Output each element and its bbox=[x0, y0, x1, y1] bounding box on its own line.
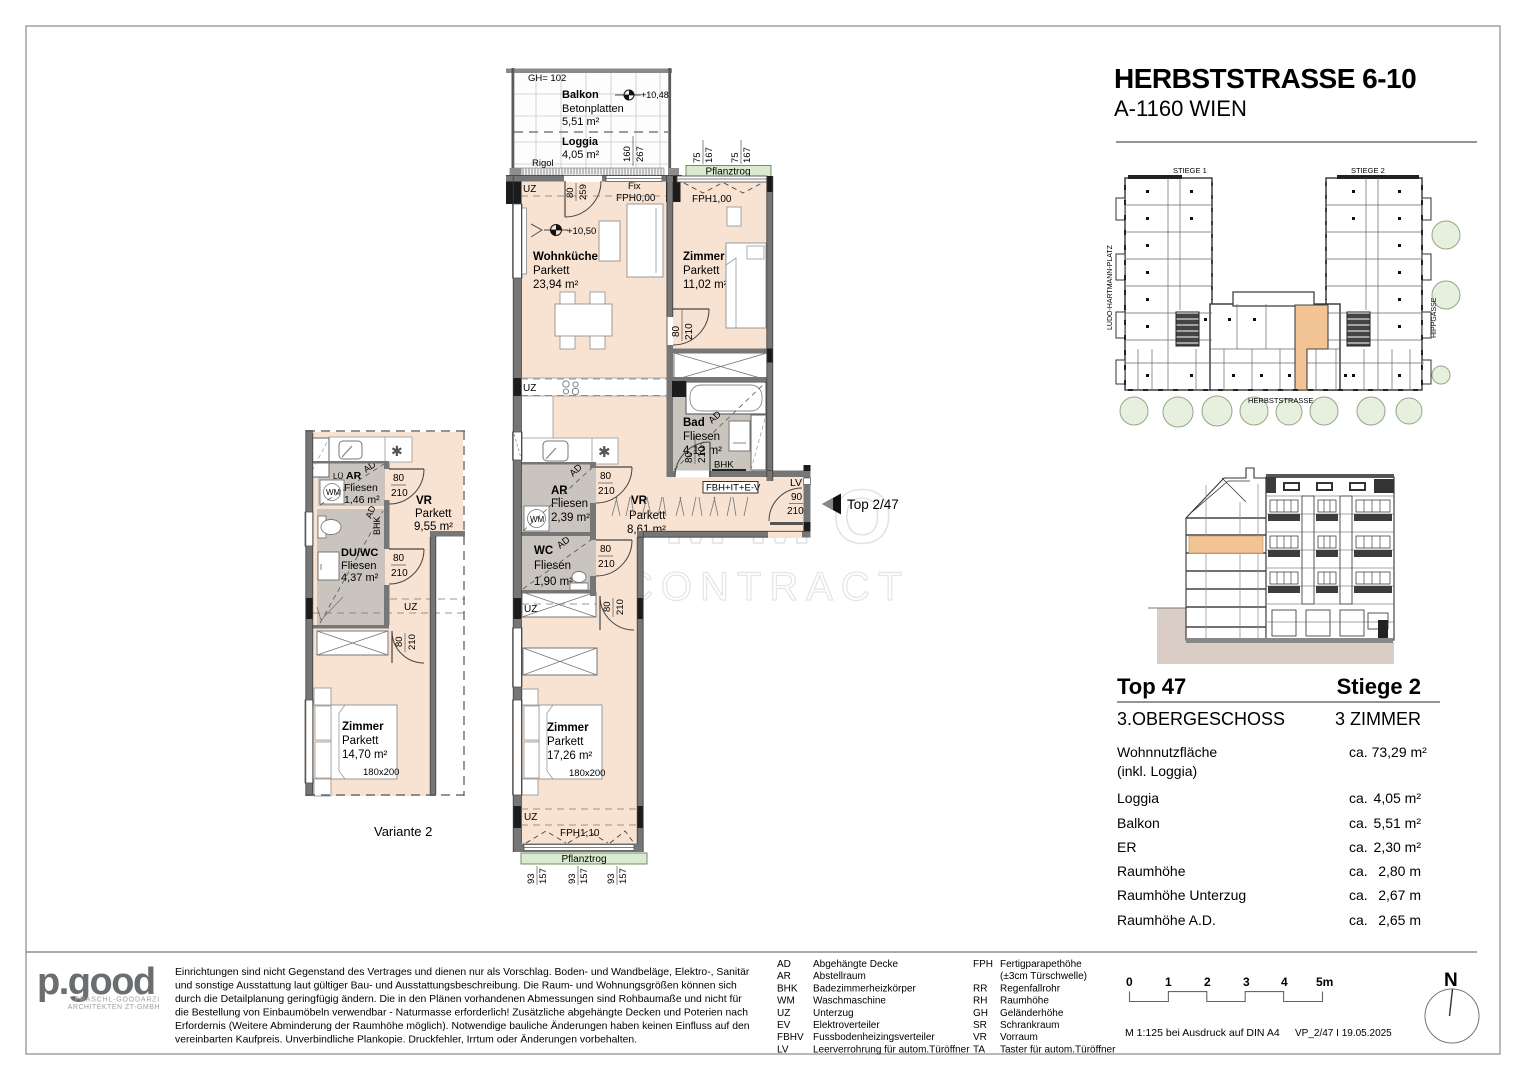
svg-text:23,94 m²: 23,94 m² bbox=[533, 279, 579, 291]
svg-text:Top 2/47: Top 2/47 bbox=[847, 497, 899, 512]
svg-text:Unterzug: Unterzug bbox=[813, 1008, 854, 1019]
svg-text:75: 75 bbox=[730, 152, 741, 163]
svg-text:VR: VR bbox=[416, 495, 433, 507]
svg-text:4,05 m²: 4,05 m² bbox=[562, 149, 600, 161]
svg-text:Abgehängte Decke: Abgehängte Decke bbox=[813, 959, 899, 970]
svg-text:AD: AD bbox=[777, 959, 791, 970]
svg-text:14,70 m²: 14,70 m² bbox=[342, 749, 388, 761]
svg-text:AR: AR bbox=[777, 971, 791, 982]
svg-text:4: 4 bbox=[1281, 975, 1288, 989]
svg-text:4,37 m²: 4,37 m² bbox=[341, 572, 379, 584]
svg-text:vereinbarten Kaufpreis. Unverb: vereinbarten Kaufpreis. Unverbindliche P… bbox=[175, 1034, 637, 1046]
svg-text:2,65 m: 2,65 m bbox=[1378, 912, 1421, 928]
svg-text:160: 160 bbox=[622, 146, 633, 162]
svg-text:80: 80 bbox=[600, 544, 612, 555]
svg-text:157: 157 bbox=[618, 868, 629, 884]
svg-text:Schrankraum: Schrankraum bbox=[1000, 1020, 1059, 1031]
svg-text:+10,50: +10,50 bbox=[567, 226, 596, 237]
svg-text:210: 210 bbox=[407, 634, 418, 650]
svg-text:FPH1,10: FPH1,10 bbox=[560, 828, 600, 839]
svg-text:180x200: 180x200 bbox=[363, 767, 399, 778]
svg-text:M 1:125 bei Ausdruck auf DIN A: M 1:125 bei Ausdruck auf DIN A4 bbox=[1125, 1027, 1280, 1039]
svg-text:4,05 m²: 4,05 m² bbox=[1374, 790, 1422, 806]
svg-text:ER: ER bbox=[1117, 839, 1136, 855]
svg-text:FPH0,00: FPH0,00 bbox=[616, 193, 656, 204]
svg-text:167: 167 bbox=[742, 147, 753, 163]
svg-text:Parkett: Parkett bbox=[415, 508, 452, 520]
svg-text:Vorraum: Vorraum bbox=[1000, 1032, 1038, 1043]
svg-text:WC: WC bbox=[534, 545, 553, 557]
svg-text:80: 80 bbox=[671, 325, 682, 337]
svg-text:0: 0 bbox=[1126, 975, 1133, 989]
svg-text:Taster für autom.Türöffner: Taster für autom.Türöffner bbox=[1000, 1044, 1116, 1055]
svg-text:Betonplatten: Betonplatten bbox=[562, 103, 624, 115]
svg-text:80: 80 bbox=[600, 471, 612, 482]
svg-text:93: 93 bbox=[526, 873, 537, 884]
svg-text:BHK: BHK bbox=[372, 516, 382, 535]
svg-text:LUDO-HARTMANN-PLATZ: LUDO-HARTMANN-PLATZ bbox=[1107, 244, 1114, 330]
svg-text:BHK: BHK bbox=[777, 983, 798, 994]
svg-text:Stiege 2: Stiege 2 bbox=[1337, 674, 1421, 699]
svg-text:Zimmer: Zimmer bbox=[683, 251, 725, 263]
svg-text:93: 93 bbox=[606, 873, 617, 884]
svg-text:TA: TA bbox=[973, 1044, 985, 1055]
svg-text:ARCHITEKTEN ZT-GMBH: ARCHITEKTEN ZT-GMBH bbox=[68, 1004, 160, 1011]
svg-text:210: 210 bbox=[615, 599, 626, 615]
svg-text:Waschmaschine: Waschmaschine bbox=[813, 996, 886, 1007]
svg-text:180x200: 180x200 bbox=[569, 768, 605, 779]
svg-text:210: 210 bbox=[598, 486, 615, 497]
svg-text:Variante 2: Variante 2 bbox=[374, 824, 432, 839]
svg-text:80: 80 bbox=[602, 601, 613, 612]
svg-text:Geländerhöhe: Geländerhöhe bbox=[1000, 1008, 1064, 1019]
svg-text:Parkett: Parkett bbox=[629, 510, 666, 522]
svg-text:80: 80 bbox=[393, 553, 405, 564]
svg-text:Fliesen: Fliesen bbox=[683, 431, 720, 443]
svg-text:1,46 m²: 1,46 m² bbox=[344, 494, 380, 506]
svg-text:90: 90 bbox=[791, 492, 803, 503]
svg-text:5m: 5m bbox=[1316, 975, 1333, 989]
svg-text:Parkett: Parkett bbox=[342, 735, 379, 747]
svg-text:STIEGE 2: STIEGE 2 bbox=[1351, 166, 1385, 175]
svg-text:Abstellraum: Abstellraum bbox=[813, 971, 866, 982]
svg-text:210: 210 bbox=[787, 506, 804, 517]
svg-text:5,51 m²: 5,51 m² bbox=[562, 116, 600, 128]
svg-text:Raumhöhe Unterzug: Raumhöhe Unterzug bbox=[1117, 887, 1246, 903]
svg-text:BHK: BHK bbox=[714, 460, 734, 471]
svg-text:Elektroverteiler: Elektroverteiler bbox=[813, 1020, 880, 1031]
svg-text:Wohnnutzfläche: Wohnnutzfläche bbox=[1117, 744, 1217, 760]
svg-text:EV: EV bbox=[777, 1020, 791, 1031]
svg-text:FBHV: FBHV bbox=[777, 1032, 804, 1043]
svg-text:5,51 m²: 5,51 m² bbox=[1374, 815, 1422, 831]
svg-text:3 ZIMMER: 3 ZIMMER bbox=[1335, 709, 1421, 729]
svg-text:UZ: UZ bbox=[777, 1008, 790, 1019]
svg-text:Erfordernis (Weitere Abminderu: Erfordernis (Weitere Abminderung der Rau… bbox=[175, 1020, 750, 1032]
svg-text:LV: LV bbox=[790, 477, 802, 489]
svg-text:210: 210 bbox=[684, 323, 695, 340]
svg-text:GH= 102: GH= 102 bbox=[528, 73, 566, 84]
svg-text:Rigol: Rigol bbox=[532, 158, 554, 169]
svg-text:17,26 m²: 17,26 m² bbox=[547, 750, 593, 762]
svg-text:Fussbodenheizingsverteiler: Fussbodenheizingsverteiler bbox=[813, 1032, 935, 1043]
svg-text:und sonstige Ausstattung laut: und sonstige Ausstattung laut gültiger B… bbox=[175, 981, 737, 992]
svg-text:CONTRACT: CONTRACT bbox=[624, 565, 910, 609]
svg-text:Badezimmerheizkörper: Badezimmerheizkörper bbox=[813, 983, 916, 994]
svg-text:Zimmer: Zimmer bbox=[342, 721, 384, 733]
svg-text:93: 93 bbox=[567, 873, 578, 884]
svg-text:✱: ✱ bbox=[391, 443, 403, 459]
svg-text:FPH: FPH bbox=[973, 959, 993, 970]
svg-text:(inkl. Loggia): (inkl. Loggia) bbox=[1117, 763, 1197, 779]
svg-text:WM: WM bbox=[326, 488, 341, 497]
svg-text:SR: SR bbox=[973, 1020, 987, 1031]
svg-text:1,90 m²: 1,90 m² bbox=[534, 576, 573, 588]
svg-text:VR: VR bbox=[973, 1032, 987, 1043]
svg-text:3: 3 bbox=[1243, 975, 1250, 989]
svg-text:STIEGE 1: STIEGE 1 bbox=[1173, 166, 1207, 175]
svg-text:Fix: Fix bbox=[628, 181, 641, 192]
svg-text:3.OBERGESCHOSS: 3.OBERGESCHOSS bbox=[1117, 709, 1285, 729]
svg-text:AR: AR bbox=[551, 485, 568, 497]
svg-text:PRASCHL-GOODARZI: PRASCHL-GOODARZI bbox=[74, 997, 160, 1004]
svg-text:2,80 m: 2,80 m bbox=[1378, 863, 1421, 879]
svg-text:ca. 73,29 m²: ca. 73,29 m² bbox=[1349, 744, 1427, 760]
svg-text:80: 80 bbox=[684, 451, 695, 463]
svg-text:+10,48: +10,48 bbox=[641, 90, 669, 100]
svg-text:ca.: ca. bbox=[1349, 790, 1368, 806]
svg-text:2,67 m: 2,67 m bbox=[1378, 887, 1421, 903]
svg-text:ca.: ca. bbox=[1349, 887, 1368, 903]
svg-text:Loggia: Loggia bbox=[1117, 790, 1159, 806]
svg-text:RH: RH bbox=[973, 996, 987, 1007]
svg-text:durch die Detailplanung gering: durch die Detailplanung geringfügig ände… bbox=[175, 994, 742, 1005]
svg-text:Top 47: Top 47 bbox=[1117, 674, 1186, 699]
svg-text:210: 210 bbox=[598, 559, 615, 570]
svg-text:HERBSTSTRASSE 6-10: HERBSTSTRASSE 6-10 bbox=[1114, 63, 1416, 94]
svg-text:2,30 m²: 2,30 m² bbox=[1374, 839, 1422, 855]
svg-text:HERBSTSTRASSE: HERBSTSTRASSE bbox=[1248, 396, 1313, 405]
svg-text:Fliesen: Fliesen bbox=[341, 560, 376, 572]
svg-text:Raumhöhe: Raumhöhe bbox=[1000, 996, 1049, 1007]
svg-text:Fliesen: Fliesen bbox=[344, 482, 378, 494]
svg-text:Zimmer: Zimmer bbox=[547, 722, 589, 734]
svg-text:WM: WM bbox=[777, 996, 795, 1007]
svg-text:ca.: ca. bbox=[1349, 912, 1368, 928]
svg-text:75: 75 bbox=[692, 152, 703, 163]
svg-text:210: 210 bbox=[391, 488, 408, 499]
svg-text:Raumhöhe: Raumhöhe bbox=[1117, 863, 1186, 879]
svg-text:FPH1,00: FPH1,00 bbox=[692, 194, 732, 205]
svg-text:ca.: ca. bbox=[1349, 863, 1368, 879]
svg-text:die Bestellung von Einbaumöbel: die Bestellung von Einbaumöbeln verwendb… bbox=[175, 1008, 748, 1019]
svg-text:✱: ✱ bbox=[598, 444, 611, 461]
svg-text:GH: GH bbox=[973, 1008, 988, 1019]
svg-text:80: 80 bbox=[393, 473, 405, 484]
svg-text:LV: LV bbox=[777, 1044, 789, 1055]
svg-text:267: 267 bbox=[635, 146, 646, 162]
svg-text:Fertigparapethöhe: Fertigparapethöhe bbox=[1000, 959, 1082, 970]
svg-text:157: 157 bbox=[579, 868, 590, 884]
svg-text:DU/WC: DU/WC bbox=[341, 547, 378, 559]
svg-text:HIPPGASSE: HIPPGASSE bbox=[1431, 297, 1438, 338]
svg-text:UZ: UZ bbox=[523, 383, 536, 394]
svg-text:80: 80 bbox=[565, 187, 576, 198]
svg-text:167: 167 bbox=[704, 147, 715, 163]
svg-text:Leerverrohrung für autom.Türöf: Leerverrohrung für autom.Türöffner bbox=[813, 1044, 970, 1055]
svg-text:ca.: ca. bbox=[1349, 815, 1368, 831]
svg-text:80: 80 bbox=[394, 636, 405, 647]
svg-text:ca.: ca. bbox=[1349, 839, 1368, 855]
svg-text:Pflanztrog: Pflanztrog bbox=[561, 854, 606, 865]
svg-text:Balkon: Balkon bbox=[1117, 815, 1160, 831]
svg-text:Bad: Bad bbox=[683, 417, 705, 429]
svg-text:Loggia: Loggia bbox=[562, 136, 599, 148]
svg-text:Wohnküche: Wohnküche bbox=[533, 251, 598, 263]
svg-text:FBH+IT+E-V: FBH+IT+E-V bbox=[706, 483, 761, 494]
svg-text:LÜ: LÜ bbox=[333, 472, 343, 481]
svg-text:Balkon: Balkon bbox=[562, 89, 599, 101]
svg-text:Regenfallrohr: Regenfallrohr bbox=[1000, 983, 1061, 994]
svg-text:1: 1 bbox=[1165, 975, 1172, 989]
svg-text:210: 210 bbox=[391, 568, 408, 579]
svg-text:A-1160 WIEN: A-1160 WIEN bbox=[1114, 96, 1247, 121]
svg-text:UZ: UZ bbox=[404, 602, 417, 613]
svg-text:Einrichtungen sind nicht Gegen: Einrichtungen sind nicht Gegenstand des … bbox=[175, 967, 750, 978]
svg-text:259: 259 bbox=[578, 184, 589, 200]
svg-text:UZ: UZ bbox=[524, 812, 537, 823]
svg-text:UZ: UZ bbox=[524, 604, 537, 615]
svg-text:2,39 m²: 2,39 m² bbox=[551, 512, 590, 524]
svg-text:157: 157 bbox=[538, 868, 549, 884]
svg-text:Parkett: Parkett bbox=[533, 265, 570, 277]
svg-text:2: 2 bbox=[1204, 975, 1211, 989]
svg-text:RR: RR bbox=[973, 983, 987, 994]
svg-text:Parkett: Parkett bbox=[683, 265, 720, 277]
svg-text:Raumhöhe A.D.: Raumhöhe A.D. bbox=[1117, 912, 1216, 928]
svg-text:UZ: UZ bbox=[523, 184, 536, 195]
svg-text:VP_2/47 I 19.05.2025: VP_2/47 I 19.05.2025 bbox=[1295, 1028, 1392, 1039]
svg-text:Fliesen: Fliesen bbox=[534, 560, 571, 572]
svg-text:N: N bbox=[1444, 970, 1458, 991]
svg-text:(±3cm Türschwelle): (±3cm Türschwelle) bbox=[1000, 971, 1087, 982]
svg-text:11,02 m²: 11,02 m² bbox=[683, 279, 728, 291]
svg-text:210: 210 bbox=[697, 446, 708, 463]
svg-text:Parkett: Parkett bbox=[547, 736, 584, 748]
